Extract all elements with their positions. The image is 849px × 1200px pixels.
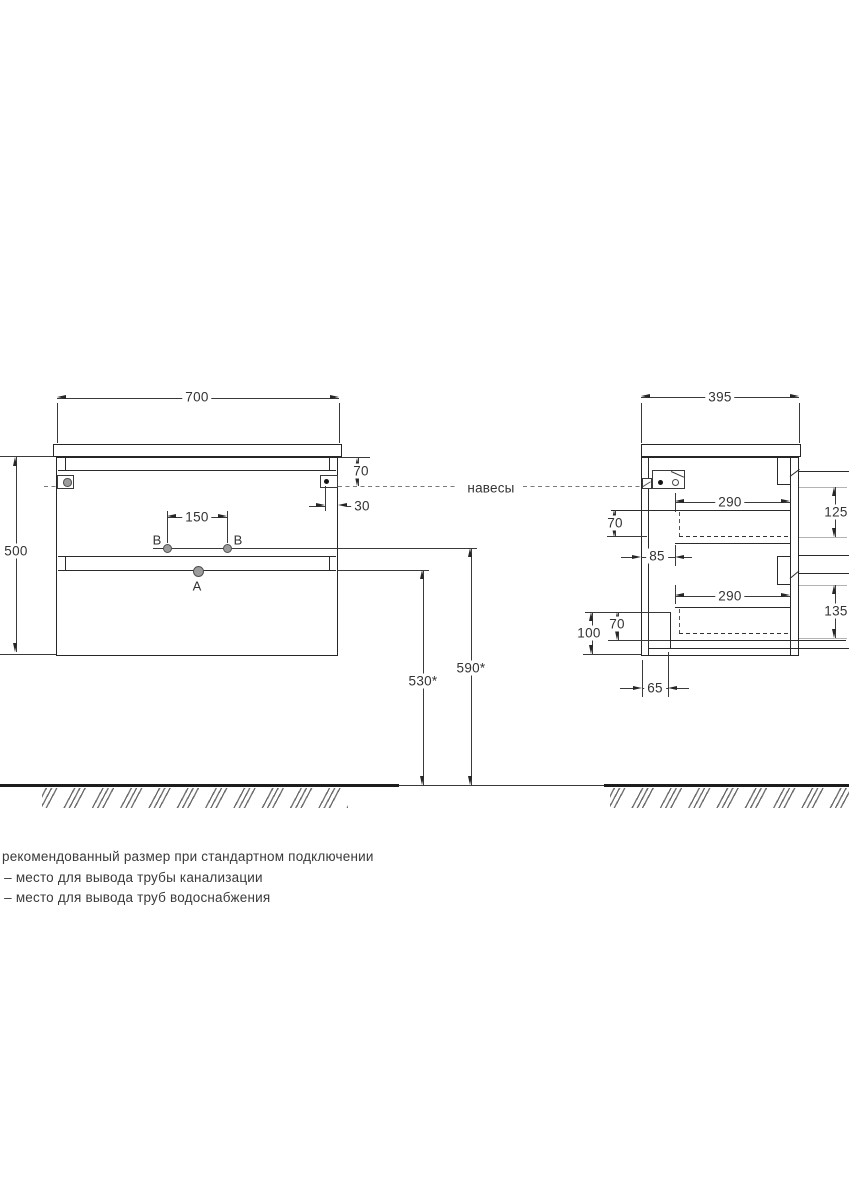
dim-30-arrow-left [316,503,325,507]
front-right-wall-tick-mid [329,557,330,570]
hangers-dashed-line-right [523,486,642,487]
lower-drawer-back-dashed [679,609,680,633]
dim-500-ext-top [0,456,53,457]
dim-150-ext-right [227,511,228,543]
dim-290b-arrow-left [675,593,684,597]
ref-line-upper-front-top [799,471,849,472]
hole-b-right-label: В [234,533,243,548]
dim-70f-ext-top [338,457,370,458]
dim-150-label: 150 [182,510,211,525]
dim-700-ext-right [339,403,340,443]
dim-500-label: 500 [1,544,30,559]
side-top-rail-h [777,484,790,485]
dim-135-arrow-top [832,585,836,594]
hangers-label: навесы [467,481,514,496]
left-hanger-screw-icon [63,478,72,487]
dim-530-label: 530* [406,674,441,689]
dim-590-arrow-top [468,548,472,557]
upper-drawer-bottom-dashed [679,536,790,537]
dim-125-ref-top [799,487,847,488]
dim-135-label: 135 [821,604,849,619]
supply-holes-level-line [153,548,477,549]
note-recommended-size: рекомендованный размер при стандартном п… [2,849,374,864]
siphon-step-front-line [670,612,671,649]
dim-500-arrow-bottom [13,643,17,652]
dim-290a-arrow-right [781,499,790,503]
dim-125-label: 125 [821,505,849,520]
lower-drawer-bottom-solid [670,640,846,641]
dim-590-arrow-bottom [468,776,472,785]
technical-drawing: навесы 700 500 70 30 150 В В А 590* 530* [0,0,849,1200]
drain-level-line [338,570,429,571]
side-top-rail-v [777,458,778,484]
ground-hatch-left [42,788,348,808]
dim-290b-arrow-right [781,593,790,597]
note-hole-b: В – место для вывода труб водоснабжения [0,890,270,905]
upper-drawer-bottom-solid [675,543,790,544]
dim-150-arrow-left [167,514,176,518]
dim-135-arrow-bottom [832,629,836,638]
front-top-rail-line [58,470,336,471]
dim-65-arrow-right [668,686,677,690]
dim-85-arrow-right [675,555,684,559]
dim-65-label: 65 [644,681,666,696]
dim-700-arrow-right [330,395,339,399]
lower-drawer-top-line [675,607,790,608]
dim-70b-ext-bottom [608,640,670,641]
ground-hatch-right [610,788,849,808]
dim-100-label: 100 [574,626,603,641]
dim-125-ref-bottom [799,537,847,538]
dim-700-label: 700 [182,390,211,405]
dim-290b-label: 290 [715,589,744,604]
dim-395-arrow-right [790,394,799,398]
ref-line-lower-front-top [799,573,849,574]
front-drawer-gap-top-line [58,556,336,557]
dim-70b-arrow-bottom [615,631,619,640]
dim-30-label: 30 [351,499,373,514]
dim-65-arrow-left [633,686,642,690]
hole-a-icon [193,566,204,577]
right-hanger-pin-icon [324,479,330,485]
side-mid-rail-bottom [777,584,790,585]
dim-700-arrow-left [57,395,66,399]
dim-530-arrow-bottom [420,776,424,785]
dim-100-arrow-bottom [589,645,593,654]
lower-drawer-bottom-dashed [679,633,790,634]
dim-500-arrow-top [13,457,17,466]
ref-line-lower-front-bottom [799,648,849,649]
dim-290a-arrow-left [675,499,684,503]
front-left-wall-tick-top [65,458,66,470]
hole-a-label: А [193,579,202,594]
dim-85-lead-right [684,557,692,558]
dim-395-arrow-left [641,394,650,398]
dim-65-lead-right [677,688,689,689]
dim-65-ext-right [668,652,669,697]
dim-85-arrow-left [632,555,641,559]
upper-drawer-back-dashed [679,512,680,536]
dim-70b-label: 70 [606,617,628,632]
dim-100-arrow-top [589,612,593,621]
side-hanger-bracket [652,470,685,489]
dim-395-ext-left [641,403,642,443]
ground-line-right [604,784,849,788]
dim-125-arrow-top [832,487,836,496]
dim-150-arrow-right [218,514,227,518]
hole-b-left-label: В [153,533,162,548]
dim-65-ext-left [642,660,643,697]
dim-500-ext-bottom [0,654,56,655]
dim-70f-label: 70 [350,464,372,479]
note-hole-a: А – место для вывода трубы канализации [0,870,263,885]
dim-65-lead-left [620,688,633,689]
dim-125-arrow-bottom [832,528,836,537]
hangers-dashed-line-mid [338,486,456,487]
dim-100-ext-bottom [583,654,641,655]
dim-135-ref-bottom [799,638,847,639]
ground-line-left [0,784,399,788]
dim-70a-label: 70 [604,516,626,531]
ground-reference-line [399,785,604,786]
dim-590-label: 590* [454,661,489,676]
dim-530-arrow-top [420,570,424,579]
dim-85-label: 85 [646,549,668,564]
side-countertop [641,444,801,457]
dim-395-label: 395 [705,390,734,405]
dim-395-ext-right [799,403,800,443]
dim-290a-label: 290 [715,495,744,510]
right-hanger-bracket [320,475,338,488]
dim-30-ext [325,486,326,511]
side-mid-rail-top [777,556,790,557]
dim-700-ext-left [57,403,58,443]
ref-line-upper-front-bottom [799,555,849,556]
front-countertop [53,444,342,457]
hole-b-right-icon [223,544,232,553]
front-right-wall-tick-top [329,458,330,470]
dim-30-arrow-right [338,503,347,507]
hangers-dashed-line-left-stub [44,486,57,487]
upper-drawer-top-line [611,510,790,511]
front-left-wall-tick-mid [65,557,66,570]
side-hanger-hole-icon [672,479,679,486]
side-mid-rail-v [777,556,778,584]
hole-b-left-icon [163,544,172,553]
dim-135-ref-top [799,585,847,586]
side-hanger-pin-icon [658,480,663,485]
siphon-step-top-line [585,612,670,613]
